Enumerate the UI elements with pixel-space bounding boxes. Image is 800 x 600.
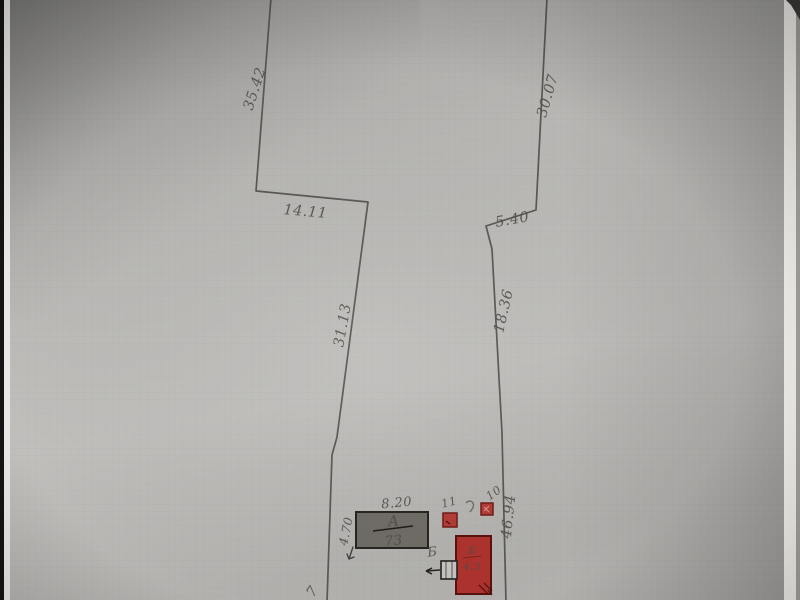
photo-of-hand-drawn-plot-plan: 35.42 14.11 31.13 30.07 5.40 18.36 46.94… bbox=[0, 0, 800, 600]
plot-plan-canvas: 35.42 14.11 31.13 30.07 5.40 18.36 46.94… bbox=[0, 0, 800, 600]
photo-vignette bbox=[0, 0, 800, 600]
